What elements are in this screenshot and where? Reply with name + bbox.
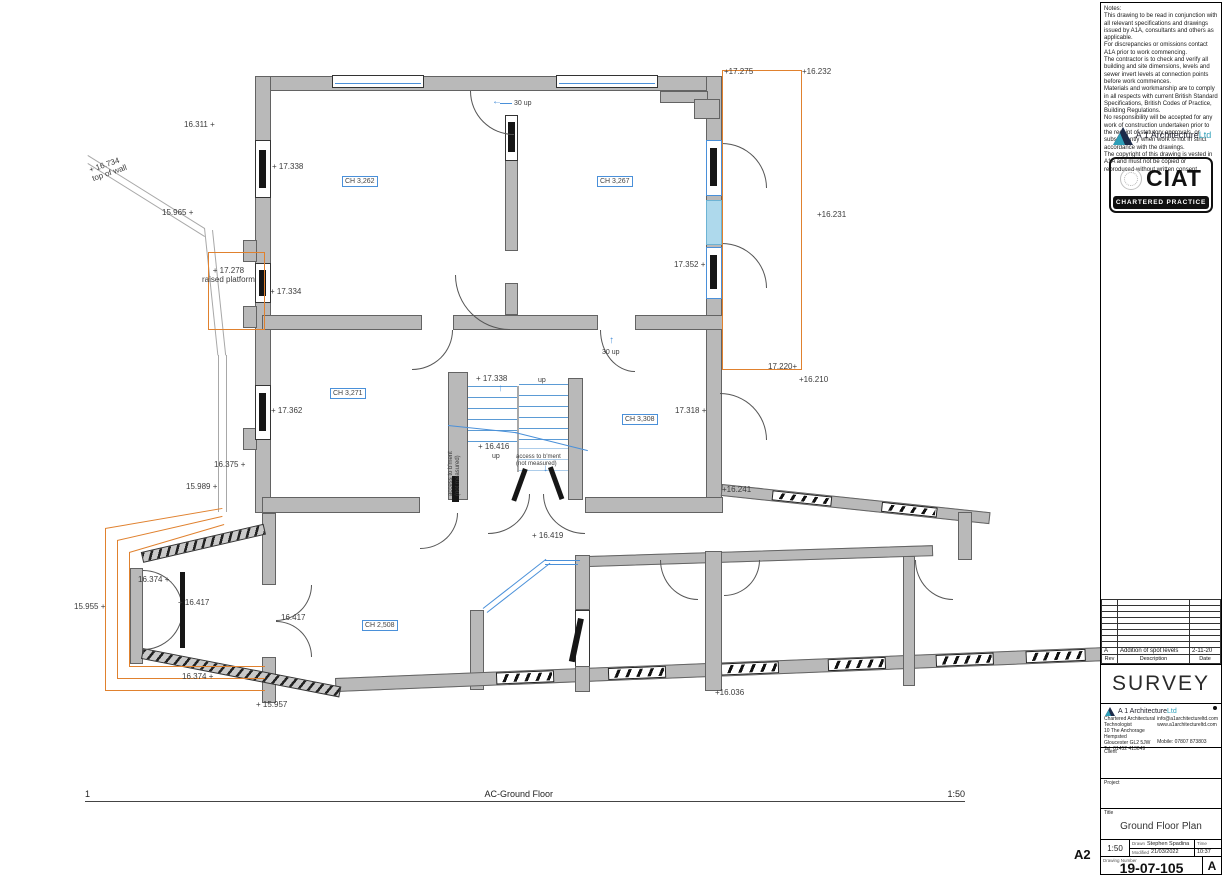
time-label: Time bbox=[1197, 841, 1207, 846]
drawing-title: Ground Floor Plan bbox=[1104, 821, 1218, 832]
logo-triangle-icon bbox=[1104, 706, 1115, 716]
annotation-line-orange bbox=[105, 690, 265, 691]
revision-header-description: Description bbox=[1118, 655, 1190, 664]
drawing-scale: 1:50 bbox=[1101, 840, 1130, 856]
wall bbox=[575, 666, 590, 692]
stair-note-line: (not measured) bbox=[516, 461, 561, 468]
door-swing-arc bbox=[488, 494, 530, 534]
wall bbox=[262, 315, 422, 330]
ceiling-line bbox=[483, 559, 547, 609]
door-swing-arc bbox=[720, 393, 767, 440]
drawn-label: Drawn bbox=[1132, 841, 1145, 846]
view-name: AC-Ground Floor bbox=[484, 789, 553, 799]
spot-level: 16.375 + bbox=[214, 460, 245, 469]
spot-level-value: + 17.278 bbox=[202, 266, 255, 275]
logo-triangle-icon bbox=[1111, 125, 1133, 145]
spot-level: + 16.417 bbox=[178, 598, 209, 607]
revision-header-row: Rev Description Date bbox=[1102, 655, 1221, 664]
window-hatched bbox=[1025, 649, 1085, 663]
stair-wall bbox=[568, 378, 583, 500]
drawing-number-row: Drawing Number 19-07-105 A bbox=[1101, 856, 1221, 875]
ceiling-line bbox=[545, 560, 580, 561]
modified-label: Modified bbox=[1132, 850, 1149, 855]
spot-level: + 17.278 raised platform bbox=[202, 266, 255, 284]
spot-level: 16.417 bbox=[281, 613, 305, 622]
ceiling-height-label: CH 2,508 bbox=[362, 620, 398, 631]
wall bbox=[903, 556, 915, 686]
spot-level: 15.989 + bbox=[186, 482, 217, 491]
view-caption-underline bbox=[85, 801, 965, 802]
door-swing-arc bbox=[143, 610, 183, 650]
spot-level: 16.374 + bbox=[138, 575, 169, 584]
ceiling-height-label: CH 3,308 bbox=[622, 414, 658, 425]
drawing-revision: A bbox=[1202, 857, 1221, 875]
spot-level: + 16.416 bbox=[478, 442, 509, 451]
window-frame bbox=[259, 393, 266, 431]
revision-description: Addition of spot levels bbox=[1118, 648, 1190, 655]
spot-level: + 16.419 bbox=[532, 531, 563, 540]
spot-level: 17.220+ bbox=[768, 362, 797, 371]
project-section: Project bbox=[1101, 778, 1221, 808]
revision-header-rev: Rev bbox=[1102, 655, 1118, 664]
contact-company-suffix: Ltd bbox=[1167, 708, 1177, 715]
company-name: A 1 ArchitectureLtd bbox=[1136, 130, 1212, 140]
contact-block: A 1 ArchitectureLtd Chartered Architectu… bbox=[1101, 703, 1221, 747]
wall bbox=[705, 551, 722, 691]
drawing-number-cell: Drawing Number 19-07-105 bbox=[1101, 857, 1202, 875]
spot-level: +17.275 bbox=[724, 67, 753, 76]
ceiling-height-label: CH 3,267 bbox=[597, 176, 633, 187]
window-hatched bbox=[772, 490, 833, 506]
title-block-panel: Notes: This drawing to be read in conjun… bbox=[1100, 2, 1222, 875]
ciat-badge-wrap: CIAT CHARTERED PRACTICE bbox=[1101, 157, 1221, 217]
registered-dot-icon bbox=[1213, 706, 1217, 710]
spot-level: +16.241 bbox=[722, 485, 751, 494]
stair-label: up bbox=[492, 452, 500, 461]
ciat-acronym: CIAT bbox=[1146, 165, 1202, 192]
stair-note-line: access to b'ment bbox=[516, 454, 561, 461]
floor-plan-canvas: ↑ ↓ bbox=[0, 0, 1100, 877]
spot-level: 15.965 + bbox=[162, 208, 193, 217]
revision-table: A Addition of spot levels 2-11-20 Rev De… bbox=[1101, 599, 1221, 664]
window-hatched bbox=[608, 666, 666, 680]
window-frame bbox=[259, 150, 266, 188]
door-leaf bbox=[710, 255, 717, 289]
door-swing-arc bbox=[543, 494, 585, 534]
ciat-emblem-icon bbox=[1120, 168, 1142, 190]
contact-company-name-text: A 1 Architecture bbox=[1118, 708, 1167, 715]
spot-level: 17.318 + bbox=[675, 406, 706, 415]
wall bbox=[585, 497, 723, 513]
annotation-line-orange bbox=[129, 552, 130, 666]
ceiling-line bbox=[545, 564, 578, 565]
title-section: Title Ground Floor Plan bbox=[1101, 808, 1221, 839]
drawn-cell: Drawn Stephen Spadina bbox=[1130, 840, 1194, 849]
spot-level: + 17.362 bbox=[271, 406, 302, 415]
revision-header-date: Date bbox=[1190, 655, 1221, 664]
revision-row: A Addition of spot levels 2-11-20 bbox=[1102, 648, 1221, 655]
time-value: 10:37 bbox=[1197, 849, 1211, 855]
ceiling-height-label: CH 3,262 bbox=[342, 176, 378, 187]
revision-date: 2-11-20 bbox=[1190, 648, 1221, 655]
door-swing-arc bbox=[412, 330, 453, 370]
window-hatched bbox=[828, 657, 886, 671]
status-label: SURVEY bbox=[1101, 664, 1221, 703]
spot-level: + 15.957 bbox=[256, 700, 287, 709]
contact-mobile: Mobile: 07807 873803 bbox=[1157, 740, 1218, 746]
spot-level: + 17.338 bbox=[272, 162, 303, 171]
contact-web: www.a1architectureltd.com bbox=[1157, 723, 1218, 729]
spot-level: 16.311 + bbox=[184, 120, 215, 129]
stair-note-line: (not measured) bbox=[455, 451, 462, 496]
boundary-line bbox=[218, 355, 219, 512]
annotation-line-orange bbox=[105, 508, 222, 529]
spot-level: + 17.334 bbox=[270, 287, 301, 296]
annotation-rect-orange bbox=[208, 252, 265, 330]
wall bbox=[694, 99, 720, 119]
door-swing-arc bbox=[724, 560, 760, 596]
time-label-cell: Time bbox=[1195, 840, 1221, 849]
company-name-text: A 1 Architecture bbox=[1136, 130, 1199, 140]
client-section: Client bbox=[1101, 747, 1221, 778]
ceiling-line bbox=[487, 563, 551, 613]
arrow-line bbox=[500, 103, 512, 104]
window bbox=[556, 75, 658, 88]
modified-value: 21/03/2022 bbox=[1151, 849, 1179, 855]
stair-note-line: access to b'ment bbox=[448, 451, 455, 496]
stair-arrow: ↑ bbox=[609, 336, 614, 346]
contact-logo-row: A 1 ArchitectureLtd bbox=[1104, 706, 1218, 716]
ceiling-height-label: CH 3,271 bbox=[330, 388, 366, 399]
title-label: Title bbox=[1104, 810, 1218, 816]
revision-rev: A bbox=[1102, 648, 1118, 655]
window-hatched bbox=[881, 502, 938, 518]
window-hatched bbox=[936, 653, 994, 667]
door-swing-arc bbox=[660, 560, 698, 600]
highlighted-wall-segment bbox=[706, 200, 722, 245]
project-label: Project bbox=[1104, 780, 1218, 786]
company-suffix: Ltd bbox=[1199, 130, 1212, 140]
stair-label: 30 up bbox=[602, 348, 620, 357]
door-swing-arc bbox=[915, 560, 953, 600]
door-swing-arc bbox=[420, 513, 458, 549]
wall-sloped bbox=[721, 484, 991, 524]
window-glazing-line bbox=[559, 83, 655, 84]
stair-note: access to b'ment (not measured) bbox=[516, 454, 561, 467]
time-value-cell: 10:37 bbox=[1195, 849, 1221, 857]
spot-level-caption: raised platform bbox=[202, 275, 255, 284]
view-scale: 1:50 bbox=[947, 789, 965, 799]
scale-row: 1:50 Drawn Stephen Spadina Modified 21/0… bbox=[1101, 839, 1221, 856]
wall bbox=[262, 513, 276, 585]
ciat-badge: CIAT CHARTERED PRACTICE bbox=[1109, 157, 1213, 213]
door-leaf bbox=[710, 148, 717, 186]
view-number: 1 bbox=[85, 789, 90, 799]
stair-label: 30 up bbox=[514, 99, 532, 108]
annotation-rect-orange bbox=[722, 70, 802, 370]
drawing-number-label: Drawing Number bbox=[1103, 858, 1137, 863]
spot-level: +16.036 bbox=[715, 688, 744, 697]
ciat-caption: CHARTERED PRACTICE bbox=[1113, 196, 1209, 209]
spot-level: 15.955 + bbox=[74, 602, 105, 611]
boundary-line bbox=[226, 355, 227, 512]
spot-level: +16.210 bbox=[799, 375, 828, 384]
stair-treads bbox=[468, 386, 518, 446]
contact-company-name: A 1 ArchitectureLtd bbox=[1118, 708, 1177, 715]
stair-note: access to b'ment (not measured) bbox=[448, 451, 461, 496]
paper-size-label: A2 bbox=[1074, 847, 1091, 862]
wall-sloped bbox=[588, 545, 933, 567]
spot-level: 16.374 + bbox=[182, 672, 213, 681]
spot-level: +16.231 bbox=[817, 210, 846, 219]
window-hatched bbox=[496, 670, 554, 684]
stair-up-arrow: ↑ bbox=[498, 384, 503, 394]
door-arrow: ← bbox=[492, 97, 502, 107]
company-logo: A 1 ArchitectureLtd bbox=[1101, 115, 1221, 155]
stair-label: up bbox=[538, 376, 546, 385]
window-hatched bbox=[721, 661, 779, 675]
view-caption: 1 AC-Ground Floor 1:50 bbox=[85, 789, 965, 802]
spot-level: 17.352 + bbox=[674, 260, 705, 269]
spot-level: +16.232 bbox=[802, 67, 831, 76]
annotation-line-orange bbox=[129, 666, 265, 667]
client-label: Client bbox=[1104, 749, 1218, 755]
drawn-value: Stephen Spadina bbox=[1147, 841, 1189, 847]
window-glazing-line bbox=[335, 83, 421, 84]
wall bbox=[262, 497, 420, 513]
wall bbox=[635, 315, 723, 330]
door-leaf bbox=[180, 610, 185, 648]
spot-level: + 17.338 bbox=[476, 374, 507, 383]
door-swing-arc bbox=[276, 621, 312, 657]
modified-cell: Modified 21/03/2022 bbox=[1130, 849, 1194, 857]
window bbox=[332, 75, 424, 88]
wall bbox=[958, 512, 972, 560]
annotation-line-orange bbox=[117, 540, 118, 678]
